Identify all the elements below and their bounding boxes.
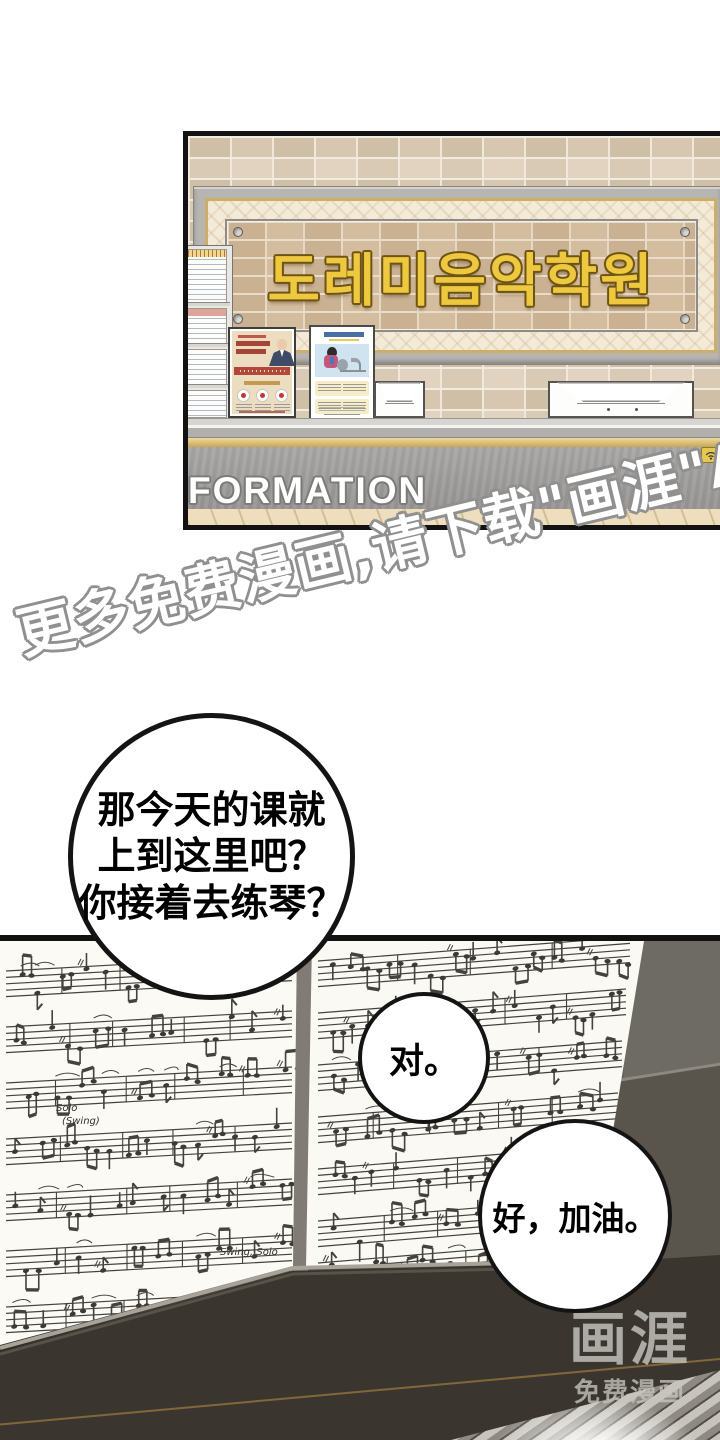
- poster-text-line: [238, 335, 266, 338]
- rack-shelf: [184, 343, 230, 347]
- paper-tray-wide: [548, 381, 694, 418]
- poster-footer-text: [319, 407, 365, 411]
- screw-icon: [233, 314, 243, 324]
- poster-illustration: [315, 344, 369, 377]
- poster-lamp: [351, 358, 361, 370]
- sheet-annotation: Swing, Solo: [220, 1247, 278, 1258]
- screw-icon: [680, 314, 690, 324]
- tray-edge: [577, 403, 665, 405]
- huaya-logo-text: 画涯: [560, 1310, 700, 1368]
- paper-tray: [374, 381, 425, 418]
- tray-edge: [385, 403, 414, 405]
- tray-opening: [378, 382, 420, 402]
- poster-text-line: [236, 341, 270, 346]
- poster-text-line: [236, 349, 266, 354]
- academy-sign-text: 도레미음악학원: [267, 235, 655, 317]
- brochure-header: [188, 309, 226, 316]
- counter-top-edge: [188, 428, 720, 438]
- rack-shelf: [184, 384, 230, 388]
- brochure-paper: [187, 390, 227, 418]
- poster-subheading: [244, 381, 280, 385]
- sheet-annotation: Solo: [56, 1103, 77, 1114]
- speech-bubble-reply: 对。: [358, 992, 490, 1124]
- comic-page: 도레미음악학원: [0, 0, 720, 1440]
- brochure-paper: [187, 308, 227, 344]
- speech-bubble-encourage: 好，加油。: [478, 1119, 672, 1313]
- poster-feature-icon: [275, 389, 288, 402]
- poster-info-text: [343, 384, 366, 393]
- poster-footer-line: [324, 414, 360, 416]
- poster-feature-icon: [237, 389, 250, 402]
- poster-man-illustration: [277, 339, 287, 350]
- poster-info-text: [318, 384, 341, 393]
- speech-line: 那今天的课就: [97, 787, 325, 833]
- tray-dot: [607, 408, 610, 411]
- huaya-logo: 画涯 免费漫画: [560, 1310, 700, 1409]
- brochure-paper: [187, 349, 227, 385]
- poster-ribbon: [234, 367, 290, 375]
- poster-academy: [309, 325, 375, 420]
- screw-icon: [680, 227, 690, 237]
- rack-shelf: [184, 302, 230, 306]
- brochure-rack: [183, 245, 233, 420]
- counter-top: [188, 418, 720, 425]
- poster-teacher: [228, 327, 296, 418]
- speech-line: 好，加油。: [493, 1192, 658, 1240]
- huaya-logo-tagline: 免费漫画: [560, 1372, 700, 1409]
- speech-line: 对。: [389, 1033, 459, 1084]
- tray-opening: [557, 382, 685, 402]
- speech-bubble-teacher: 那今天的课就 上到这里吧？ 你接着去练琴？: [68, 713, 355, 1000]
- poster-title-bar: [324, 332, 364, 337]
- sheet-annotation: (Swing): [62, 1116, 100, 1127]
- tray-dot: [635, 408, 638, 411]
- poster-book: [330, 357, 334, 364]
- brochure-header: [188, 250, 226, 257]
- poster-info-box: [315, 381, 369, 396]
- speech-line: 你接着去练琴？: [78, 880, 344, 926]
- poster-subtitle-bar: [329, 339, 359, 341]
- poster-footer-line: [239, 411, 285, 414]
- poster-desk: [340, 370, 366, 372]
- brochure-paper: [187, 249, 227, 303]
- speech-line: 上到这里吧？: [97, 833, 325, 879]
- academy-sign-panel: 도레미음악학원: [225, 219, 698, 332]
- poster-feature-icon: [256, 389, 269, 402]
- screw-icon: [233, 227, 243, 237]
